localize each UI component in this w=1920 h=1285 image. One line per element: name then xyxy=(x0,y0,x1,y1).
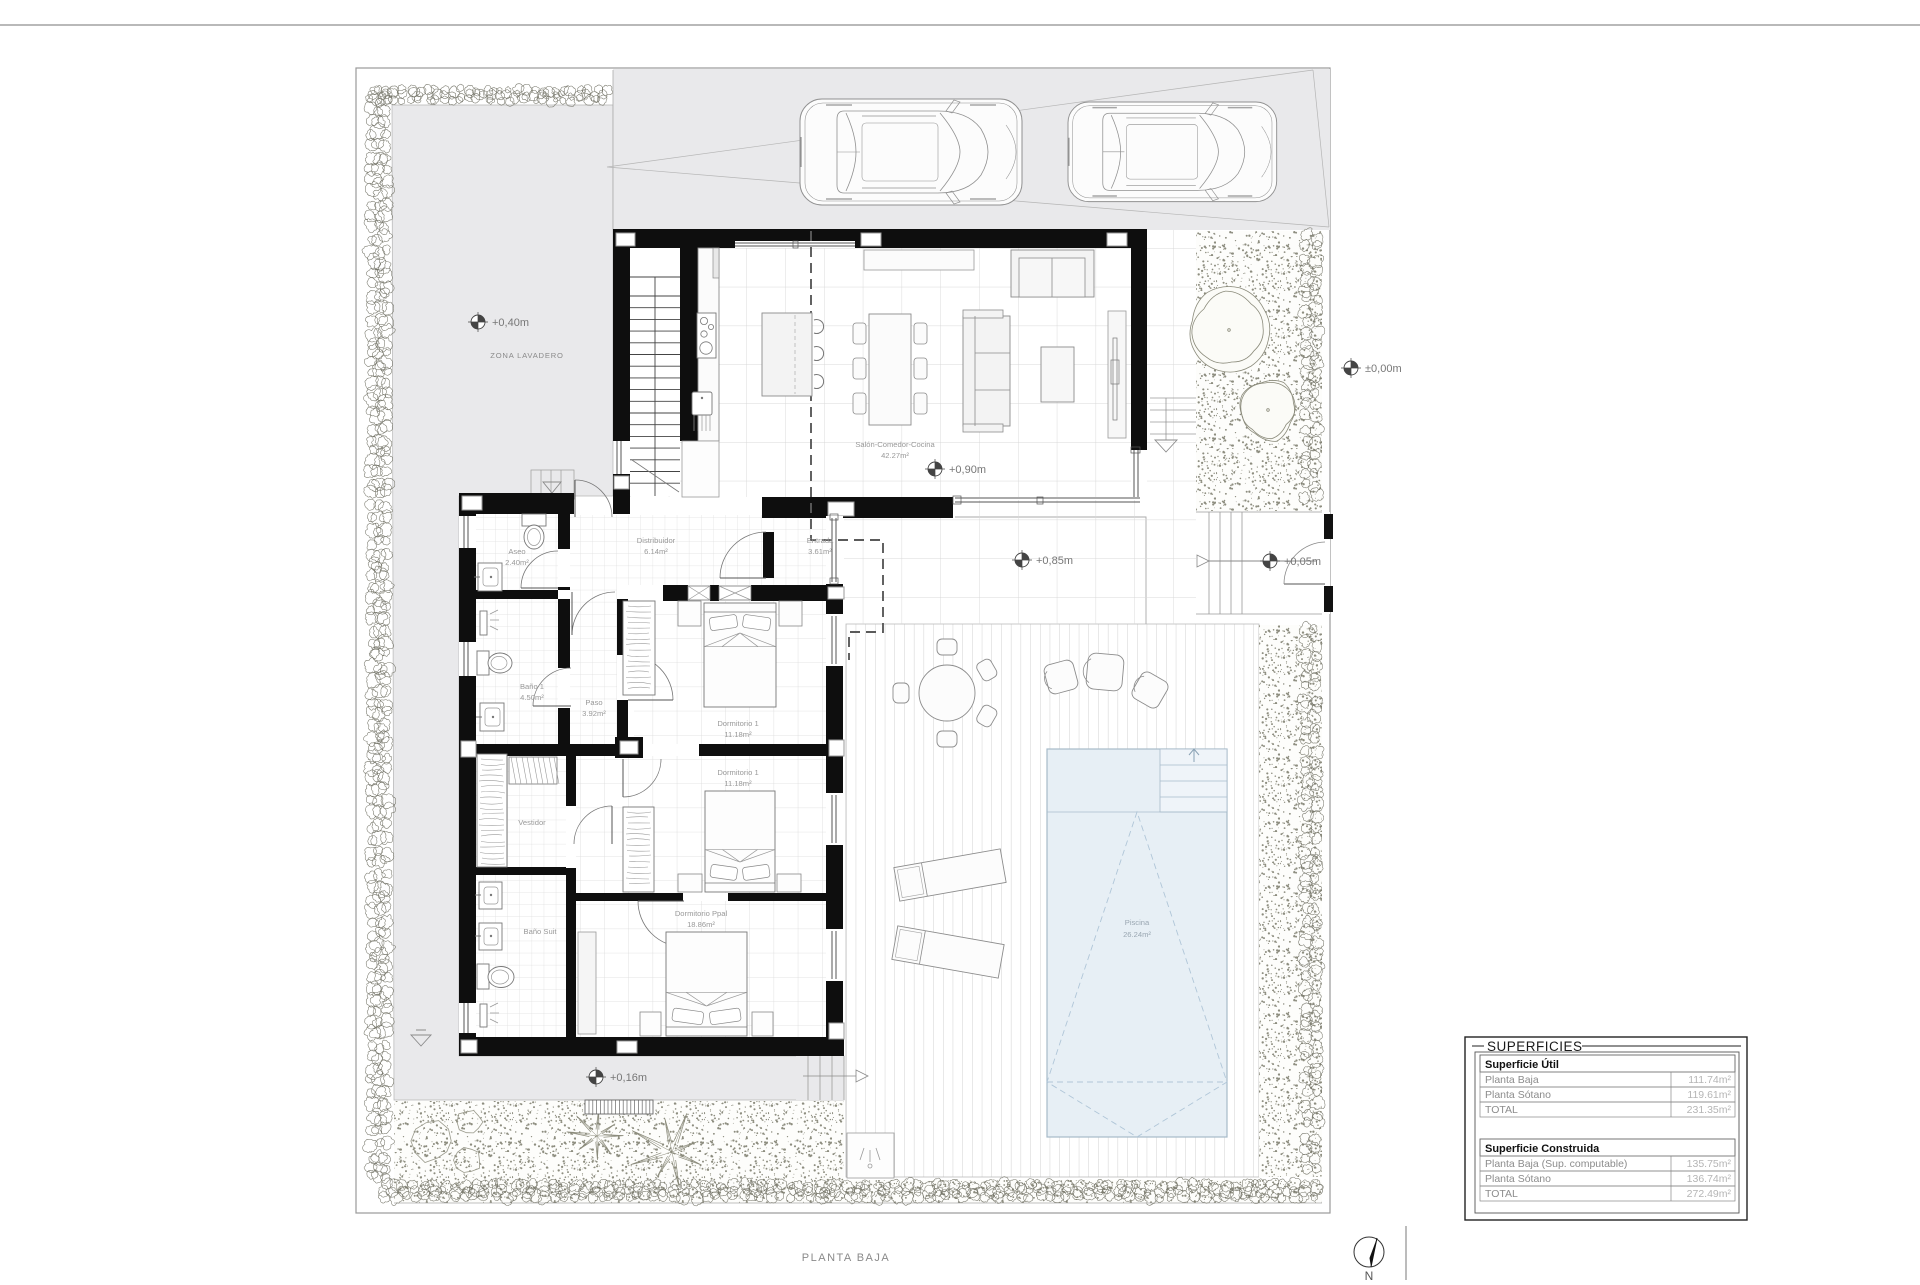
svg-text:11.18m²: 11.18m² xyxy=(724,730,752,739)
svg-text:Vestidor: Vestidor xyxy=(518,818,546,827)
svg-text:136.74m²: 136.74m² xyxy=(1687,1173,1732,1185)
svg-text:119.61m²: 119.61m² xyxy=(1687,1089,1731,1101)
svg-text:Planta Baja: Planta Baja xyxy=(1485,1074,1539,1086)
svg-text:+0,90m: +0,90m xyxy=(949,464,986,476)
svg-text:231.35m²: 231.35m² xyxy=(1687,1104,1732,1116)
svg-text:Dormitorio 1: Dormitorio 1 xyxy=(717,768,758,777)
svg-text:4.50m²: 4.50m² xyxy=(520,693,544,702)
svg-text:Planta Sótano: Planta Sótano xyxy=(1485,1173,1551,1185)
svg-text:N: N xyxy=(1365,1269,1374,1280)
svg-text:Salón-Comedor-Cocina: Salón-Comedor-Cocina xyxy=(855,440,935,449)
svg-text:Baño Suit: Baño Suit xyxy=(524,927,558,936)
svg-text:Aseo: Aseo xyxy=(508,547,525,556)
svg-text:ZONA LAVADERO: ZONA LAVADERO xyxy=(490,351,563,360)
svg-text:Paso: Paso xyxy=(585,698,602,707)
svg-text:TOTAL: TOTAL xyxy=(1485,1104,1518,1116)
svg-text:18.86m²: 18.86m² xyxy=(687,920,715,929)
svg-text:26.24m²: 26.24m² xyxy=(1123,930,1151,939)
svg-text:Planta Sótano: Planta Sótano xyxy=(1485,1089,1551,1101)
svg-text:3.92m²: 3.92m² xyxy=(582,709,606,718)
svg-text:Baño 1: Baño 1 xyxy=(520,682,544,691)
svg-text:111.74m²: 111.74m² xyxy=(1688,1074,1731,1086)
svg-text:Dormitorio Ppal: Dormitorio Ppal xyxy=(675,909,728,918)
svg-text:+0,40m: +0,40m xyxy=(492,317,529,329)
svg-text:135.75m²: 135.75m² xyxy=(1687,1158,1732,1170)
svg-text:2.40m²: 2.40m² xyxy=(505,558,529,567)
svg-text:Piscina: Piscina xyxy=(1125,918,1150,927)
svg-text:11.18m²: 11.18m² xyxy=(724,779,752,788)
svg-text:+0,05m: +0,05m xyxy=(1284,556,1321,568)
svg-text:±0,00m: ±0,00m xyxy=(1365,363,1402,375)
svg-text:Distribuidor: Distribuidor xyxy=(637,536,676,545)
svg-text:Planta Baja (Sup. computable): Planta Baja (Sup. computable) xyxy=(1485,1158,1627,1170)
svg-text:272.49m²: 272.49m² xyxy=(1687,1188,1732,1200)
svg-text:+0,16m: +0,16m xyxy=(610,1072,647,1084)
svg-text:+0,85m: +0,85m xyxy=(1036,555,1073,567)
svg-text:TOTAL: TOTAL xyxy=(1485,1188,1518,1200)
svg-text:PLANTA BAJA: PLANTA BAJA xyxy=(802,1252,890,1264)
svg-text:Superficie Útil: Superficie Útil xyxy=(1485,1058,1559,1071)
svg-text:Entrada: Entrada xyxy=(807,536,834,545)
svg-text:42.27m²: 42.27m² xyxy=(881,451,909,460)
svg-text:Superficie Construida: Superficie Construida xyxy=(1485,1143,1600,1155)
svg-text:3.61m²: 3.61m² xyxy=(808,547,832,556)
svg-text:Dormitorio 1: Dormitorio 1 xyxy=(717,719,758,728)
svg-text:6.14m²: 6.14m² xyxy=(644,547,668,556)
